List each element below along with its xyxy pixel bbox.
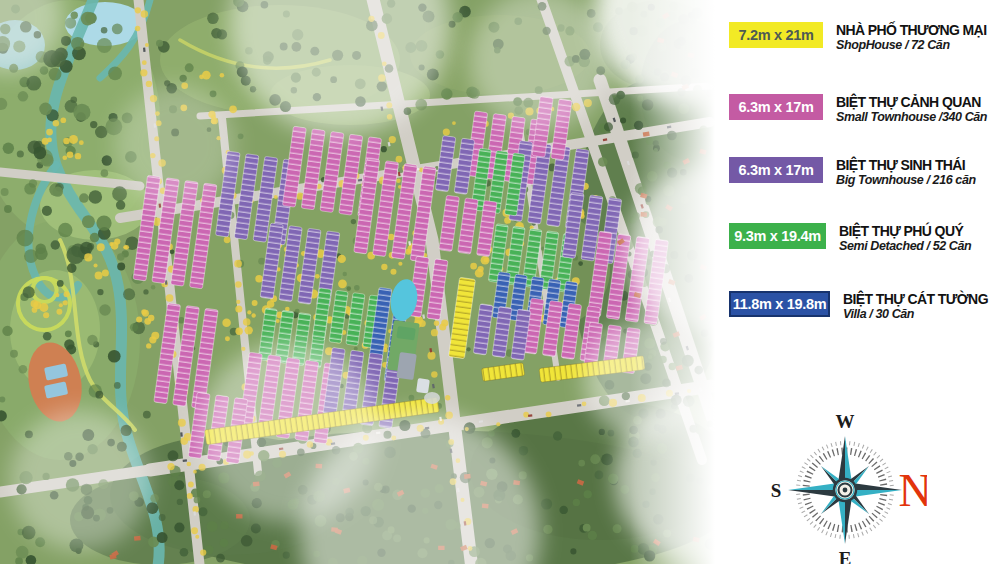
legend-size-label: 11.8m x 19.8m (733, 296, 827, 312)
masterplan-page: 7.2m x 21m NHÀ PHỐ THƯƠNG MẠI ShopHouse … (0, 0, 1000, 564)
legend-subtitle: ShopHouse / 72 Căn (836, 38, 986, 52)
legend-title: NHÀ PHỐ THƯƠNG MẠI (836, 23, 986, 38)
map-render-root (0, 0, 715, 564)
legend-item-semi-detached: 9.3m x 19.4m BIỆT THỰ PHÚ QUÝ Semi Detac… (729, 223, 971, 253)
compass-east-label: E (839, 548, 852, 564)
compass-north-label: N (898, 465, 927, 516)
legend-item-shophouse: 7.2m x 21m NHÀ PHỐ THƯƠNG MẠI ShopHouse … (729, 22, 986, 52)
compass-south-label: S (771, 480, 782, 501)
legend-title: BIỆT THỰ PHÚ QUÝ (839, 224, 971, 239)
legend-title: BIỆT THỰ CẢNH QUAN (836, 95, 987, 110)
legend-title: BIỆT THỰ SINH THÁI (836, 158, 976, 173)
compass-rose-icon: W S E N (763, 412, 927, 564)
legend-size-label: 6.3m x 17m (738, 162, 813, 178)
legend-swatch-semi-detached: 9.3m x 19.4m (729, 223, 826, 249)
legend-size-label: 6.3m x 17m (738, 99, 813, 115)
legend-item-villa: 11.8m x 19.8m BIỆT THỰ CÁT TƯỜNG Villa /… (729, 291, 988, 321)
legend-subtitle: Big Townhouse / 216 căn (836, 173, 976, 187)
legend-size-label: 9.3m x 19.4m (734, 228, 821, 244)
legend-subtitle: Semi Detached / 52 Căn (839, 239, 971, 253)
masterplan-map (0, 0, 715, 564)
legend-subtitle: Small Townhouse /340 Căn (836, 110, 987, 124)
legend-size-label: 7.2m x 21m (738, 27, 813, 43)
compass-hub-dot (843, 488, 848, 493)
legend-swatch-villa: 11.8m x 19.8m (729, 291, 830, 317)
legend-item-big-townhouse: 6.3m x 17m BIỆT THỰ SINH THÁI Big Townho… (729, 157, 976, 187)
legend-title: BIỆT THỰ CÁT TƯỜNG (843, 292, 988, 307)
legend-subtitle: Villa / 30 Căn (843, 307, 988, 321)
legend-swatch-shophouse: 7.2m x 21m (729, 22, 823, 48)
legend-item-small-townhouse: 6.3m x 17m BIỆT THỰ CẢNH QUAN Small Town… (729, 94, 987, 124)
legend-swatch-small-townhouse: 6.3m x 17m (729, 94, 823, 120)
compass-west-label: W (836, 412, 855, 432)
legend-swatch-big-townhouse: 6.3m x 17m (729, 157, 823, 183)
